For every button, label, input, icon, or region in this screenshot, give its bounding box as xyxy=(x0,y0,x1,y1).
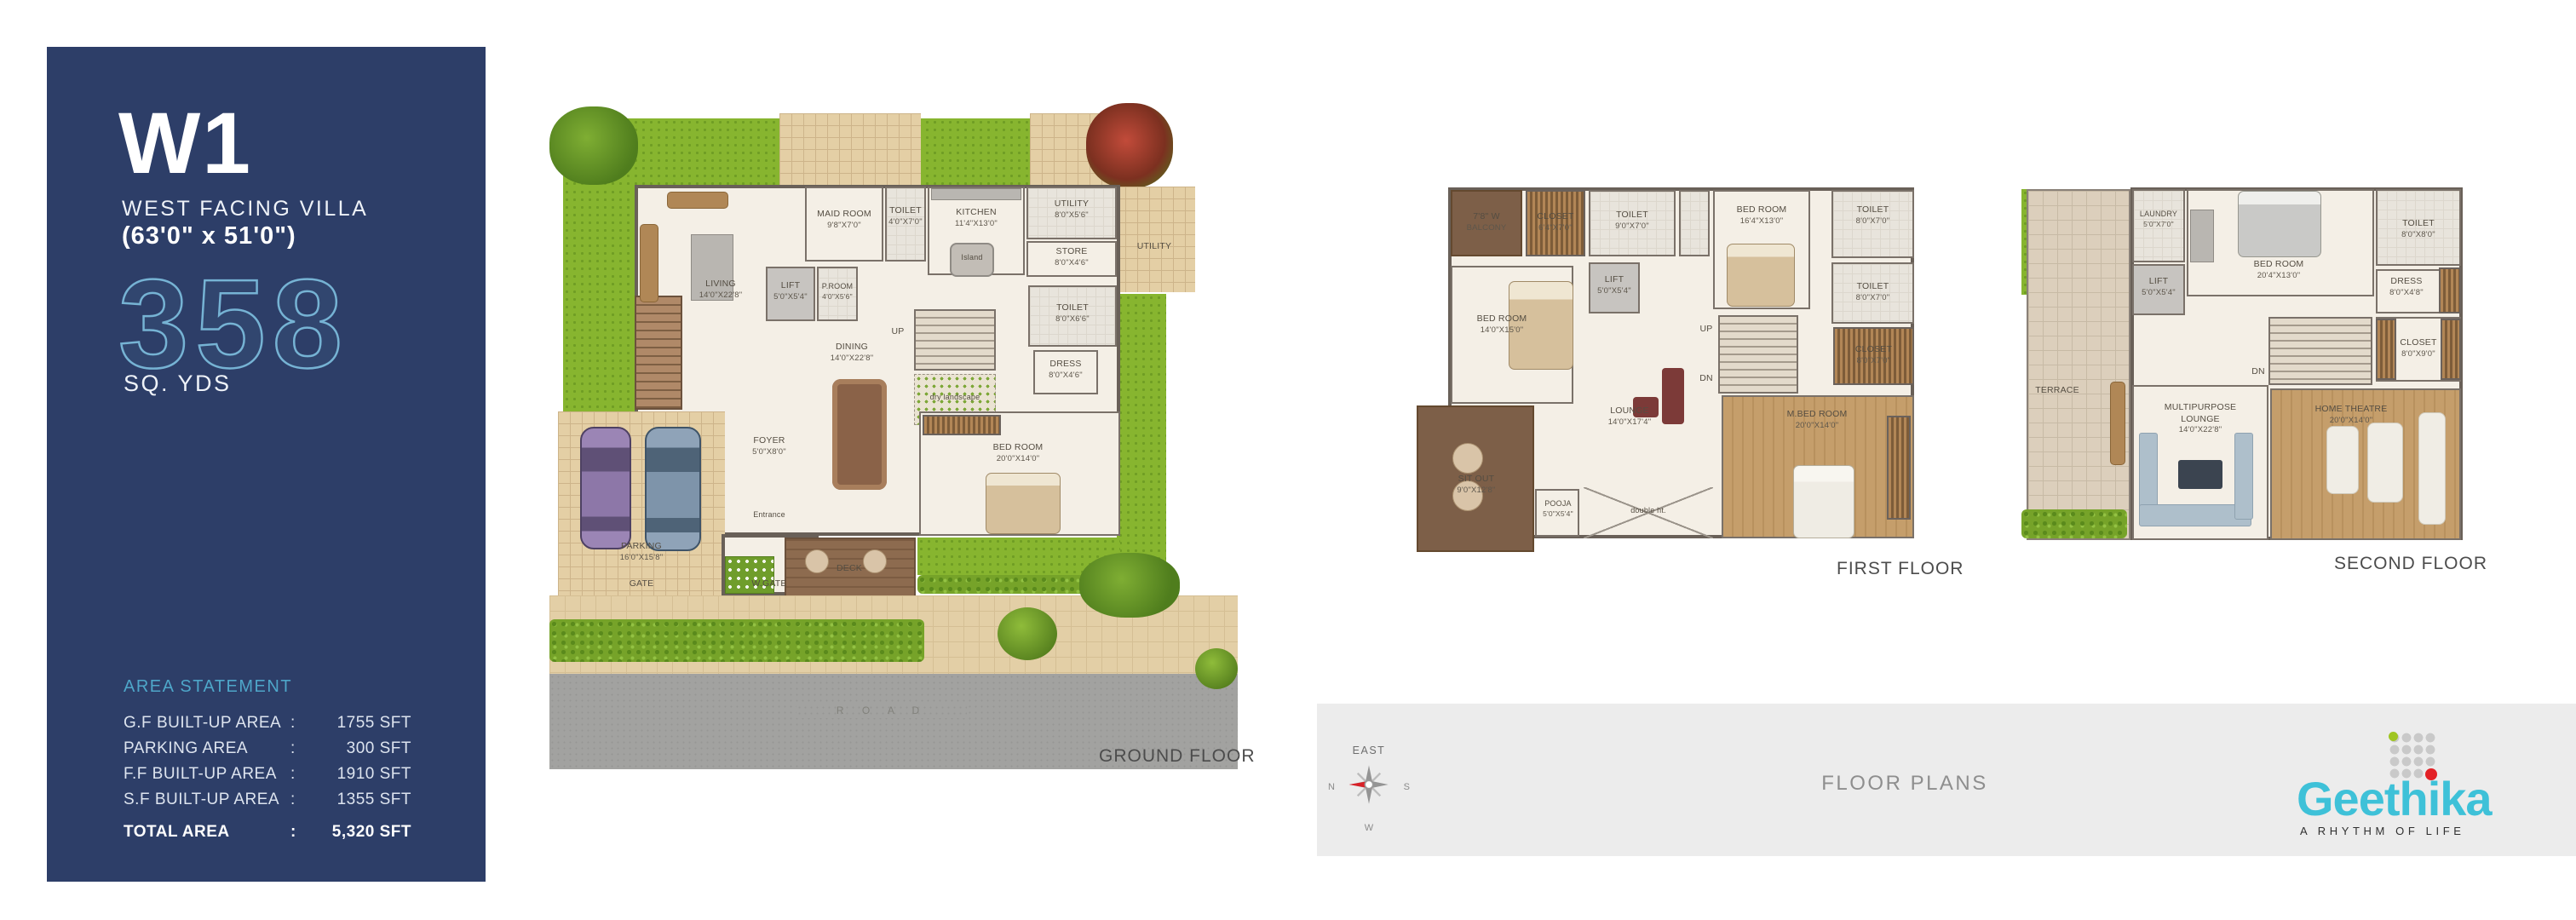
room-name: FOYER xyxy=(727,435,812,447)
first-floor-stairs xyxy=(1718,315,1798,394)
room-name: UP xyxy=(1694,324,1718,336)
page-title: FLOOR PLANS xyxy=(1794,772,2015,796)
second-floor-dress-wardrobe xyxy=(2439,267,2461,313)
logo-green-dot-icon xyxy=(2389,732,2398,741)
room-name: CLOSET xyxy=(1833,344,1914,356)
room-name: PARKING xyxy=(597,541,686,553)
ground-floor-bush-1 xyxy=(998,607,1057,660)
first-floor-sit-out-chair-1 xyxy=(1452,443,1483,474)
first-floor-pooja-label: POOJA5'0"X5'4" xyxy=(1534,499,1582,519)
second-floor-toilet-label: TOILET8'0"X8'0" xyxy=(2376,218,2461,240)
second-floor-terrace-label: TERRACE xyxy=(2027,385,2088,397)
first-floor-m-wardrobe xyxy=(1887,416,1911,520)
compass-w-label: W xyxy=(1335,823,1403,833)
ground-floor-entrance-label: Entrance xyxy=(727,510,812,520)
ground-floor-up-label: UP xyxy=(885,326,911,338)
ground-floor-stairs-outdoor xyxy=(635,296,682,410)
room-name: BED ROOM xyxy=(1449,313,1555,325)
area-row-lbl: G.F BUILT-UP AREA xyxy=(124,714,290,733)
room-name: TOILET xyxy=(883,205,928,217)
ground-floor-dining-label: DINING14'0"X22'8" xyxy=(805,342,899,364)
area-row-lbl: TOTAL AREA xyxy=(124,823,290,842)
ground-floor-bush-row xyxy=(549,619,924,662)
room-dimensions: 5'0"X7'0" xyxy=(2127,220,2190,229)
ground-floor-bed xyxy=(986,473,1061,534)
room-name: BED ROOM xyxy=(1710,204,1814,216)
second-floor-recliner-1 xyxy=(2326,426,2359,494)
area-statement-title: AREA STATEMENT xyxy=(124,677,413,697)
first-floor-m-bed xyxy=(1793,465,1854,538)
area-row-col: : xyxy=(290,714,309,733)
first-floor-caption: FIRST FLOOR xyxy=(1837,559,1964,579)
area-row: F.F BUILT-UP AREA:1910 SFT xyxy=(124,765,413,784)
room-name: R O A D xyxy=(796,704,967,718)
compass-s-label: S xyxy=(1404,782,1410,792)
room-name: M.BED ROOM xyxy=(1757,409,1877,421)
area-unit: SQ. YDS xyxy=(124,371,232,397)
ground-floor-maid-room-label: MAID ROOM9'8"X7'0" xyxy=(803,209,885,231)
first-floor-dn-label: DN xyxy=(1694,373,1718,385)
room-dimensions: 9'0"X7'0" xyxy=(1589,221,1676,232)
area-row-lbl: F.F BUILT-UP AREA xyxy=(124,765,290,784)
ground-floor-car-1 xyxy=(580,427,631,549)
room-name: TERRACE xyxy=(2027,385,2088,397)
second-floor-home-theatre-label: HOME THEATRE20'0"X14'0" xyxy=(2296,404,2406,426)
area-row-col: : xyxy=(290,823,309,842)
ground-floor-powder-room-label: P.ROOM4'0"X5'6" xyxy=(815,282,860,302)
footer-band: EAST N S W FLOOR PLANS Geethika A RHYTHM… xyxy=(1317,704,2576,856)
first-floor-toilet-2-label: TOILET8'0"X7'0" xyxy=(1831,204,1914,227)
second-floor-recliner-2 xyxy=(2367,423,2403,503)
room-dimensions: 5'0"X5'4" xyxy=(1589,286,1640,296)
room-name: TOILET xyxy=(1831,281,1914,293)
second-floor-laundry-label: LAUNDRY5'0"X7'0" xyxy=(2127,210,2190,229)
compass: EAST N S W xyxy=(1335,745,1403,833)
ground-floor-stairs-up xyxy=(914,309,996,371)
room-dimensions: 9'8"X7'0" xyxy=(803,221,885,231)
room-name: BED ROOM xyxy=(2228,259,2330,271)
area-row: S.F BUILT-UP AREA:1355 SFT xyxy=(124,791,413,809)
ground-floor-lawn-left xyxy=(563,188,635,417)
room-name: GATE xyxy=(606,578,677,590)
room-name: BED ROOM xyxy=(950,442,1086,454)
room-name: Entrance xyxy=(727,510,812,520)
second-floor-caption: SECOND FLOOR xyxy=(2334,554,2487,574)
compass-east-label: EAST xyxy=(1335,745,1403,756)
villa-facing: WEST FACING VILLA xyxy=(122,197,368,221)
room-dimensions: 5'0"X5'4" xyxy=(766,292,815,302)
area-row-val: 300 SFT xyxy=(309,739,411,758)
first-floor-sit-out-label: SIT OUT9'0"X12'8" xyxy=(1434,474,1519,496)
sidebar: W1 WEST FACING VILLA (63'0" x 51'0") 358… xyxy=(47,47,486,882)
room-name: W.GATE xyxy=(727,578,812,590)
room-name: TOILET xyxy=(1831,204,1914,216)
room-dimensions: 9'0"X12'8" xyxy=(1434,486,1519,496)
compass-rose-icon xyxy=(1348,763,1390,806)
room-dimensions: 14'0"X22'8" xyxy=(805,354,899,364)
room-name: DN xyxy=(2246,366,2270,378)
room-dimensions: 14'0"X22'8" xyxy=(2158,425,2243,435)
first-floor-closet-2-label: CLOSET8'0"X7'0" xyxy=(1833,344,1914,366)
room-dimensions: BALCONY xyxy=(1451,223,1522,233)
first-floor-double-height-label: double ht. xyxy=(1621,506,1676,516)
room-dimensions: 20'0"X14'0" xyxy=(950,454,1086,464)
ground-floor-toilet-bed-label: TOILET8'0"X6'6" xyxy=(1028,302,1117,325)
ground-floor-tree-top-right xyxy=(1086,103,1173,188)
ground-floor-dry-landscape-label: dry landscape xyxy=(914,393,996,403)
room-name: DRESS xyxy=(2372,276,2441,288)
room-dimensions: 8'0"X7'0" xyxy=(1831,216,1914,227)
room-dimensions: 14'0"X17'4" xyxy=(1585,417,1674,428)
ground-floor-lawn-right xyxy=(1117,294,1166,597)
room-dimensions: 6'4"X7'0" xyxy=(1524,223,1587,233)
first-floor-balcony-label: 7'8" WBALCONY xyxy=(1451,211,1522,233)
room-name: CLOSET xyxy=(1524,211,1587,223)
room-name: HOME THEATRE xyxy=(2296,404,2406,416)
second-floor-lounge-label: MULTIPURPOSE LOUNGE14'0"X22'8" xyxy=(2158,402,2243,436)
ground-floor-deck-label: DECK xyxy=(805,563,894,575)
brochure-page: W1 WEST FACING VILLA (63'0" x 51'0") 358… xyxy=(0,0,2576,920)
brand-logo: Geethika A RHYTHM OF LIFE xyxy=(2297,727,2510,842)
second-floor-bed xyxy=(2238,191,2321,257)
room-name: 7'8" W xyxy=(1451,211,1522,223)
second-floor-fire-table xyxy=(2178,460,2222,489)
room-name: DN xyxy=(1694,373,1718,385)
ground-floor-dress-label: DRESS8'0"X4'6" xyxy=(1032,359,1100,381)
area-row-val: 5,320 SFT xyxy=(309,823,411,842)
second-floor-terrace-hedge xyxy=(2021,509,2127,538)
room-dimensions: 8'0"X4'6" xyxy=(1032,371,1100,381)
room-name: LOUNGE xyxy=(1585,405,1674,417)
ground-floor-bed-room-label: BED ROOM20'0"X14'0" xyxy=(950,442,1086,464)
ground-floor-tree-bottom xyxy=(1079,553,1180,618)
first-floor-bed-1 xyxy=(1727,244,1795,307)
ground-floor-kitchen-counter xyxy=(931,188,1021,200)
second-floor-recliner-3 xyxy=(2418,412,2446,525)
first-floor-lift-label: LIFT5'0"X5'4" xyxy=(1589,274,1640,296)
room-dimensions: 20'4"X13'0" xyxy=(2228,271,2330,281)
ground-floor-wardrobe-bed xyxy=(923,415,1001,435)
ground-floor-sofa-top xyxy=(667,192,728,209)
room-name: LIVING xyxy=(674,279,768,290)
area-row-col: : xyxy=(290,739,309,758)
ground-floor-tree-top-left xyxy=(549,106,638,185)
room-name: Island xyxy=(950,253,994,263)
ground-floor-island-label: Island xyxy=(950,253,994,263)
ground-floor-plan: MAID ROOM9'8"X7'0"TOILET4'0"X7'0"KITCHEN… xyxy=(524,98,1238,773)
second-floor-plan: TERRACELAUNDRY5'0"X7'0"BED ROOM20'4"X13'… xyxy=(2015,162,2517,588)
second-floor-terrace xyxy=(2027,189,2130,540)
area-row: G.F BUILT-UP AREA:1755 SFT xyxy=(124,714,413,733)
ground-floor-toilet-maid-label: TOILET4'0"X7'0" xyxy=(883,205,928,227)
area-row-val: 1910 SFT xyxy=(309,765,411,784)
first-floor-toilet-1-label: TOILET9'0"X7'0" xyxy=(1589,210,1676,232)
room-name: UP xyxy=(885,326,911,338)
ground-floor-utility-yard xyxy=(1113,187,1195,292)
room-name: CLOSET xyxy=(2376,337,2461,349)
first-floor-bed-room-2-label: BED ROOM14'0"X15'0" xyxy=(1449,313,1555,336)
first-floor-plan: 7'8" WBALCONYCLOSET6'4"X7'0"TOILET9'0"X7… xyxy=(1410,162,1959,588)
room-name: DINING xyxy=(805,342,899,354)
room-dimensions: 5'0"X5'4" xyxy=(2132,288,2185,298)
ground-floor-bush-2 xyxy=(1195,648,1238,689)
room-name: LIFT xyxy=(1589,274,1640,286)
room-name: dry landscape xyxy=(914,393,996,403)
room-name: double ht. xyxy=(1621,506,1676,516)
area-row-total: TOTAL AREA:5,320 SFT xyxy=(124,823,413,842)
ground-floor-sofa-left xyxy=(640,224,658,302)
room-dimensions: 5'0"X8'0" xyxy=(727,447,812,457)
first-floor-m-bed-room-label: M.BED ROOM20'0"X14'0" xyxy=(1757,409,1877,431)
first-floor-up-label: UP xyxy=(1694,324,1718,336)
room-name: UTILITY xyxy=(1113,241,1195,253)
second-floor-closet-label: CLOSET8'0"X9'0" xyxy=(2376,337,2461,359)
second-floor-dn-label: DN xyxy=(2246,366,2270,378)
first-floor-bed-room-1-label: BED ROOM16'4"X13'0" xyxy=(1710,204,1814,227)
plot-size: (63'0" x 51'0") xyxy=(122,222,296,250)
room-name: DRESS xyxy=(1032,359,1100,371)
ground-floor-wgate-label: W.GATE xyxy=(727,578,812,590)
area-statement: AREA STATEMENT G.F BUILT-UP AREA:1755 SF… xyxy=(124,677,413,848)
ground-floor-car-2 xyxy=(645,427,701,551)
area-row-col: : xyxy=(290,765,309,784)
room-name: SIT OUT xyxy=(1434,474,1519,486)
room-dimensions: 8'0"X9'0" xyxy=(2376,349,2461,359)
room-name: KITCHEN xyxy=(929,207,1023,219)
ground-floor-living-label: LIVING14'0"X22'8" xyxy=(674,279,768,301)
room-dimensions: 11'4"X13'0" xyxy=(929,219,1023,229)
room-name: POOJA xyxy=(1534,499,1582,509)
ground-floor-caption: GROUND FLOOR xyxy=(1099,746,1256,767)
first-floor-lounge-label: LOUNGE14'0"X17'4" xyxy=(1585,405,1674,428)
second-floor-bed-room-label: BED ROOM20'4"X13'0" xyxy=(2228,259,2330,281)
brand-tagline: A RHYTHM OF LIFE xyxy=(2300,825,2465,837)
villa-code: W1 xyxy=(118,100,252,187)
ground-floor-store-label: STORE8'0"X4'6" xyxy=(1026,246,1117,268)
ground-floor-road-label: R O A D xyxy=(796,704,967,718)
room-dimensions: 16'4"X13'0" xyxy=(1710,216,1814,227)
area-row-val: 1755 SFT xyxy=(309,714,411,733)
area-row-col: : xyxy=(290,791,309,809)
room-dimensions: 8'0"X7'0" xyxy=(1833,356,1914,366)
ground-floor-foyer-label: FOYER5'0"X8'0" xyxy=(727,435,812,457)
second-floor-tub xyxy=(2190,210,2214,262)
room-dimensions: 4'0"X7'0" xyxy=(883,217,928,227)
room-dimensions: 14'0"X22'8" xyxy=(674,290,768,301)
first-floor-toilet-3-label: TOILET8'0"X7'0" xyxy=(1831,281,1914,303)
brand-name: Geethika xyxy=(2297,775,2492,823)
room-name: LIFT xyxy=(2132,276,2185,288)
room-name: TOILET xyxy=(1589,210,1676,221)
area-rows: G.F BUILT-UP AREA:1755 SFTPARKING AREA:3… xyxy=(124,714,413,842)
first-floor-closet-1-label: CLOSET6'4"X7'0" xyxy=(1524,211,1587,233)
ground-floor-utility-yard-label: UTILITY xyxy=(1113,241,1195,253)
room-name: TOILET xyxy=(1028,302,1117,314)
ground-floor-parking-label: PARKING16'0"X15'8" xyxy=(597,541,686,563)
room-dimensions: 4'0"X5'6" xyxy=(815,292,860,302)
second-floor-lift-label: LIFT5'0"X5'4" xyxy=(2132,276,2185,298)
second-floor-terrace-sofa xyxy=(2110,382,2125,465)
ground-floor-dining-table xyxy=(832,379,887,490)
room-name: MULTIPURPOSE LOUNGE xyxy=(2158,402,2243,425)
second-floor-sofa-right xyxy=(2234,433,2253,520)
ground-floor-lift-label: LIFT5'0"X5'4" xyxy=(766,280,815,302)
ground-floor-utility-room-label: UTILITY8'0"X5'6" xyxy=(1026,198,1117,221)
room-name: TOILET xyxy=(2376,218,2461,230)
room-name: DECK xyxy=(805,563,894,575)
compass-n-label: N xyxy=(1328,782,1335,792)
room-name: LAUNDRY xyxy=(2127,210,2190,220)
ground-floor-gate-label: GATE xyxy=(606,578,677,590)
room-dimensions: 16'0"X15'8" xyxy=(597,553,686,563)
room-dimensions: 8'0"X8'0" xyxy=(2376,230,2461,240)
room-dimensions: 8'0"X6'6" xyxy=(1028,314,1117,325)
room-dimensions: 8'0"X4'8" xyxy=(2372,288,2441,298)
room-name: MAID ROOM xyxy=(803,209,885,221)
area-row-val: 1355 SFT xyxy=(309,791,411,809)
room-dimensions: 14'0"X15'0" xyxy=(1449,325,1555,336)
ground-floor-kitchen-label: KITCHEN11'4"X13'0" xyxy=(929,207,1023,229)
room-name: UTILITY xyxy=(1026,198,1117,210)
room-dimensions: 20'0"X14'0" xyxy=(1757,421,1877,431)
room-dimensions: 5'0"X5'4" xyxy=(1534,509,1582,519)
room-name: STORE xyxy=(1026,246,1117,258)
room-dimensions: 8'0"X5'6" xyxy=(1026,210,1117,221)
area-row-lbl: PARKING AREA xyxy=(124,739,290,758)
ground-floor-paver-patch-left xyxy=(779,113,921,188)
room-name: LIFT xyxy=(766,280,815,292)
first-floor-shaft xyxy=(1679,190,1710,256)
second-floor-dress-label: DRESS8'0"X4'8" xyxy=(2372,276,2441,298)
room-name: P.ROOM xyxy=(815,282,860,292)
room-dimensions: 20'0"X14'0" xyxy=(2296,416,2406,426)
room-dimensions: 8'0"X7'0" xyxy=(1831,293,1914,303)
area-row: PARKING AREA:300 SFT xyxy=(124,739,413,758)
area-value: 358 xyxy=(118,262,349,388)
room-dimensions: 8'0"X4'6" xyxy=(1026,258,1117,268)
area-row-lbl: S.F BUILT-UP AREA xyxy=(124,791,290,809)
second-floor-stairs xyxy=(2268,317,2372,385)
